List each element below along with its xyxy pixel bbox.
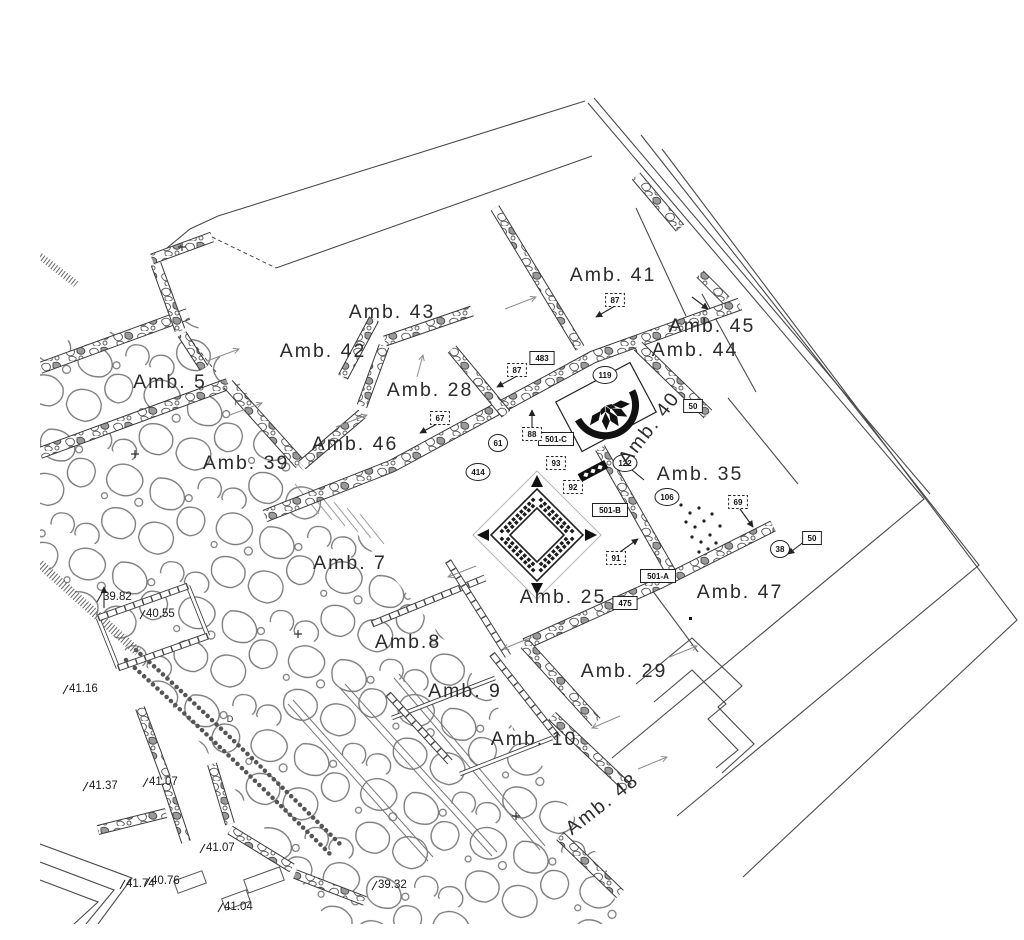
room-label: Amb. 10 — [491, 728, 578, 750]
tag-number: 501-A — [647, 572, 669, 581]
point-mark — [689, 617, 692, 620]
outline-line — [652, 590, 698, 652]
impluvium-dot — [507, 521, 512, 526]
elevation-value: 39.32 — [378, 879, 407, 891]
elevation-value: 39.82 — [103, 591, 132, 603]
tag-number: 67 — [436, 414, 445, 423]
outline-line — [662, 149, 1017, 877]
find-tag-boxed: 501-A — [641, 570, 676, 583]
tag-number: 50 — [808, 534, 817, 543]
elevation-value: 41.04 — [224, 901, 253, 913]
impluvium-dot — [499, 529, 504, 534]
impluvium-dot — [546, 505, 551, 510]
room-label: Amb. 45 — [669, 315, 756, 337]
outline-line — [40, 862, 114, 924]
impluvium-dot — [558, 517, 563, 522]
impluvium-dot — [511, 548, 516, 553]
impluvium-dot — [510, 524, 515, 529]
impluvium-dot — [570, 536, 575, 541]
impluvium-dot — [550, 556, 555, 561]
tag-leader-arrow — [740, 509, 753, 527]
room-label: Amb. 47 — [697, 581, 784, 603]
find-spot-dot — [693, 525, 696, 528]
impluvium-dot — [519, 509, 524, 514]
impluvium-dot — [514, 545, 519, 550]
impluvium-dot — [550, 509, 555, 514]
find-tag-boxed: 501-B — [593, 504, 628, 517]
room-label: Amb. 44 — [652, 339, 739, 361]
rubble-wall — [98, 813, 166, 830]
impluvium-dot — [530, 504, 535, 509]
tick-band — [40, 256, 76, 284]
rubble-wall — [636, 176, 680, 228]
impluvium-dot — [543, 508, 548, 513]
elevation-tick — [83, 782, 88, 791]
find-tag-circled: 119 — [593, 367, 617, 384]
impluvium-dot — [563, 537, 568, 542]
impluvium-dot — [515, 552, 520, 557]
impluvium-dot — [538, 568, 543, 573]
door-arrow — [417, 355, 423, 377]
impluvium-dot — [531, 568, 536, 573]
elevation-value: 41.07 — [206, 842, 235, 854]
tag-number: 92 — [569, 483, 578, 492]
find-spot-dot — [684, 520, 687, 523]
impluvium-dot — [566, 525, 571, 530]
ladder-wall-core — [448, 561, 508, 656]
impluvium-dot — [519, 556, 524, 561]
find-spot-dot — [679, 503, 682, 506]
find-spot-dot — [697, 550, 700, 553]
tag-number: 91 — [612, 554, 621, 563]
impluvium-corner-mark — [477, 529, 489, 541]
room-label: Amb. 39 — [203, 452, 290, 474]
room-label: Amb.8 — [375, 631, 441, 653]
room-label: Amb. 9 — [428, 680, 502, 702]
impluvium-dot — [563, 528, 568, 533]
find-tag-circled: 106 — [655, 489, 679, 506]
impluvium-dot — [566, 540, 571, 545]
impluvium-dot — [511, 517, 516, 522]
elevation-value: 40.76 — [151, 875, 180, 887]
elevation-tick — [143, 778, 148, 787]
excavation-plan-figure: 61414119122106384835050501-C501-B501-A47… — [40, 16, 1024, 924]
tag-leader-arrow — [692, 297, 708, 309]
find-spot-dot — [702, 519, 705, 522]
elevation-value: 41.37 — [89, 780, 118, 792]
tag-leader-arrow — [420, 424, 437, 433]
elevation-mark: 40.55 — [140, 608, 175, 620]
tag-number: 414 — [471, 468, 485, 477]
elevation-value: 41.16 — [69, 683, 98, 695]
room-label: Amb. 43 — [349, 301, 436, 323]
outline-line — [654, 670, 738, 768]
room-label: Amb. 29 — [581, 660, 668, 682]
find-spot-dot — [710, 512, 713, 515]
find-spot-dot — [699, 540, 702, 543]
room-label: Amb. 41 — [570, 264, 657, 286]
elevation-mark: 41.07 — [200, 842, 235, 854]
find-spot-dot — [688, 511, 691, 514]
impluvium-dot — [530, 561, 535, 566]
tag-number: 50 — [689, 402, 698, 411]
rubble-wall — [700, 274, 726, 300]
elevation-mark: 41.04 — [218, 901, 253, 913]
elevation-mark: 39.82 — [97, 591, 132, 603]
impluvium-dot — [518, 549, 523, 554]
impluvium-dot — [526, 508, 531, 513]
impluvium-dot — [531, 497, 536, 502]
find-tag-circled: 61 — [489, 435, 508, 452]
elevation-value: 40.55 — [146, 608, 175, 620]
room-label: Amb. 25 — [520, 586, 607, 608]
find-spot-dot — [714, 541, 717, 544]
impluvium-dot — [518, 516, 523, 521]
impluvium-dot — [559, 541, 564, 546]
elevation-mark: 39.32 — [372, 879, 407, 891]
impluvium-dot — [503, 525, 508, 530]
impluvium-dot — [547, 512, 552, 517]
room-label: Amb. 5 — [133, 371, 207, 393]
impluvium-dot — [514, 520, 519, 525]
impluvium-dot — [523, 560, 528, 565]
find-spot-dot — [706, 547, 709, 550]
misc-label: D — [227, 714, 234, 724]
find-tag-boxed: 501-C — [539, 433, 574, 446]
room-label: Amb. 35 — [657, 463, 744, 485]
impluvium-dot — [562, 521, 567, 526]
find-tag-circled: 38 — [771, 541, 790, 558]
impluvium-dot — [506, 537, 511, 542]
tag-number: 87 — [611, 296, 620, 305]
find-tag-dashed: 67 — [431, 412, 450, 425]
room-label: Amb. 48 — [561, 769, 643, 840]
elevation-tick — [200, 844, 205, 853]
tag-number: 501-B — [599, 506, 621, 515]
find-tag-dashed: 88 — [523, 428, 542, 441]
find-tag-circled: 414 — [466, 464, 490, 481]
impluvium-dot — [503, 540, 508, 545]
impluvium-dot — [523, 505, 528, 510]
impluvium-dot — [526, 557, 531, 562]
tag-leader-arrow — [497, 376, 517, 387]
door-arrow — [505, 297, 536, 309]
tag-number: 88 — [528, 430, 537, 439]
impluvium-dot — [558, 548, 563, 553]
impluvium-dot — [506, 528, 511, 533]
find-tag-dashed: 92 — [564, 481, 583, 494]
impluvium-dot — [555, 520, 560, 525]
room-label: Amb. 46 — [312, 433, 399, 455]
outline-line — [40, 844, 132, 924]
tag-number: 69 — [734, 498, 743, 507]
impluvium-dot — [539, 504, 544, 509]
elevation-mark: 41.16 — [63, 683, 98, 695]
impluvium-dot — [510, 541, 515, 546]
impluvium-dot — [546, 560, 551, 565]
find-tag-boxed: 50 — [684, 400, 703, 413]
find-tag-dashed: 87 — [606, 294, 625, 307]
mosaic-threshold — [578, 460, 609, 482]
find-tag-dashed: 87 — [508, 364, 527, 377]
tag-number: 87 — [513, 366, 522, 375]
impluvium-dot — [555, 545, 560, 550]
impluvium-dot — [562, 544, 567, 549]
elevation-tick — [63, 685, 68, 694]
tag-number: 93 — [552, 459, 561, 468]
rubble-wall — [552, 716, 628, 788]
find-tag-dashed: 91 — [607, 552, 626, 565]
impluvium-dot — [538, 497, 543, 502]
excavation-plan-svg: 61414119122106384835050501-C501-B501-A47… — [40, 16, 1024, 924]
elevation-mark: 41.07 — [143, 776, 178, 788]
impluvium-corner-mark — [531, 475, 543, 487]
elevation-mark: 40.76 — [145, 875, 180, 887]
threshold-block — [244, 867, 284, 893]
find-tag-boxed: 483 — [530, 352, 554, 365]
impluvium-dot — [527, 564, 532, 569]
outline-line — [636, 638, 754, 773]
impluvium-corner-mark — [585, 529, 597, 541]
find-tag-boxed: 50 — [803, 532, 822, 545]
impluvium-dot — [547, 553, 552, 558]
outline-line — [276, 156, 592, 268]
impluvium-dot — [515, 513, 520, 518]
tag-number: 483 — [535, 354, 549, 363]
tag-number: 119 — [599, 371, 612, 380]
find-spot-dot — [708, 533, 711, 536]
impluvium-dot — [522, 553, 527, 558]
find-spot-dot — [690, 535, 693, 538]
rubble-wall — [495, 208, 580, 348]
room-label: Amb. 42 — [280, 340, 367, 362]
room-label: Amb. 7 — [313, 552, 387, 574]
find-tag-dashed: 69 — [729, 496, 748, 509]
find-spot-dot — [718, 524, 721, 527]
tag-leader-arrow — [596, 306, 615, 317]
find-spot-dot — [697, 506, 700, 509]
tag-number: 61 — [494, 439, 503, 448]
impluvium-dot — [542, 501, 547, 506]
outline-line — [40, 880, 98, 924]
impluvium-dot — [542, 564, 547, 569]
impluvium-dot — [551, 516, 556, 521]
impluvium-dot — [522, 512, 527, 517]
outline-line — [212, 237, 276, 268]
tag-number: 501-C — [545, 435, 567, 444]
impluvium-dot — [570, 529, 575, 534]
impluvium-dot — [499, 536, 504, 541]
find-tag-boxed: 475 — [613, 597, 637, 610]
tag-number: 38 — [776, 545, 785, 554]
elevation-value: 41.07 — [149, 776, 178, 788]
impluvium-dot — [554, 513, 559, 518]
rubble-wall — [166, 782, 186, 842]
rubble-wall — [140, 708, 166, 778]
impluvium-dot — [559, 524, 564, 529]
tag-number: 475 — [618, 599, 632, 608]
elevation-mark: 41.37 — [83, 780, 118, 792]
room-label: Amb. 28 — [387, 379, 474, 401]
impluvium-dot — [551, 549, 556, 554]
tag-number: 106 — [660, 493, 674, 502]
impluvium-dot — [539, 561, 544, 566]
impluvium-dot — [527, 501, 532, 506]
find-tag-dashed: 93 — [547, 457, 566, 470]
impluvium-dot — [507, 544, 512, 549]
door-arrow — [638, 757, 667, 769]
door-arrow — [667, 646, 697, 658]
tag-leader-arrow — [620, 539, 638, 552]
impluvium-dot — [543, 557, 548, 562]
impluvium-dot — [554, 552, 559, 557]
